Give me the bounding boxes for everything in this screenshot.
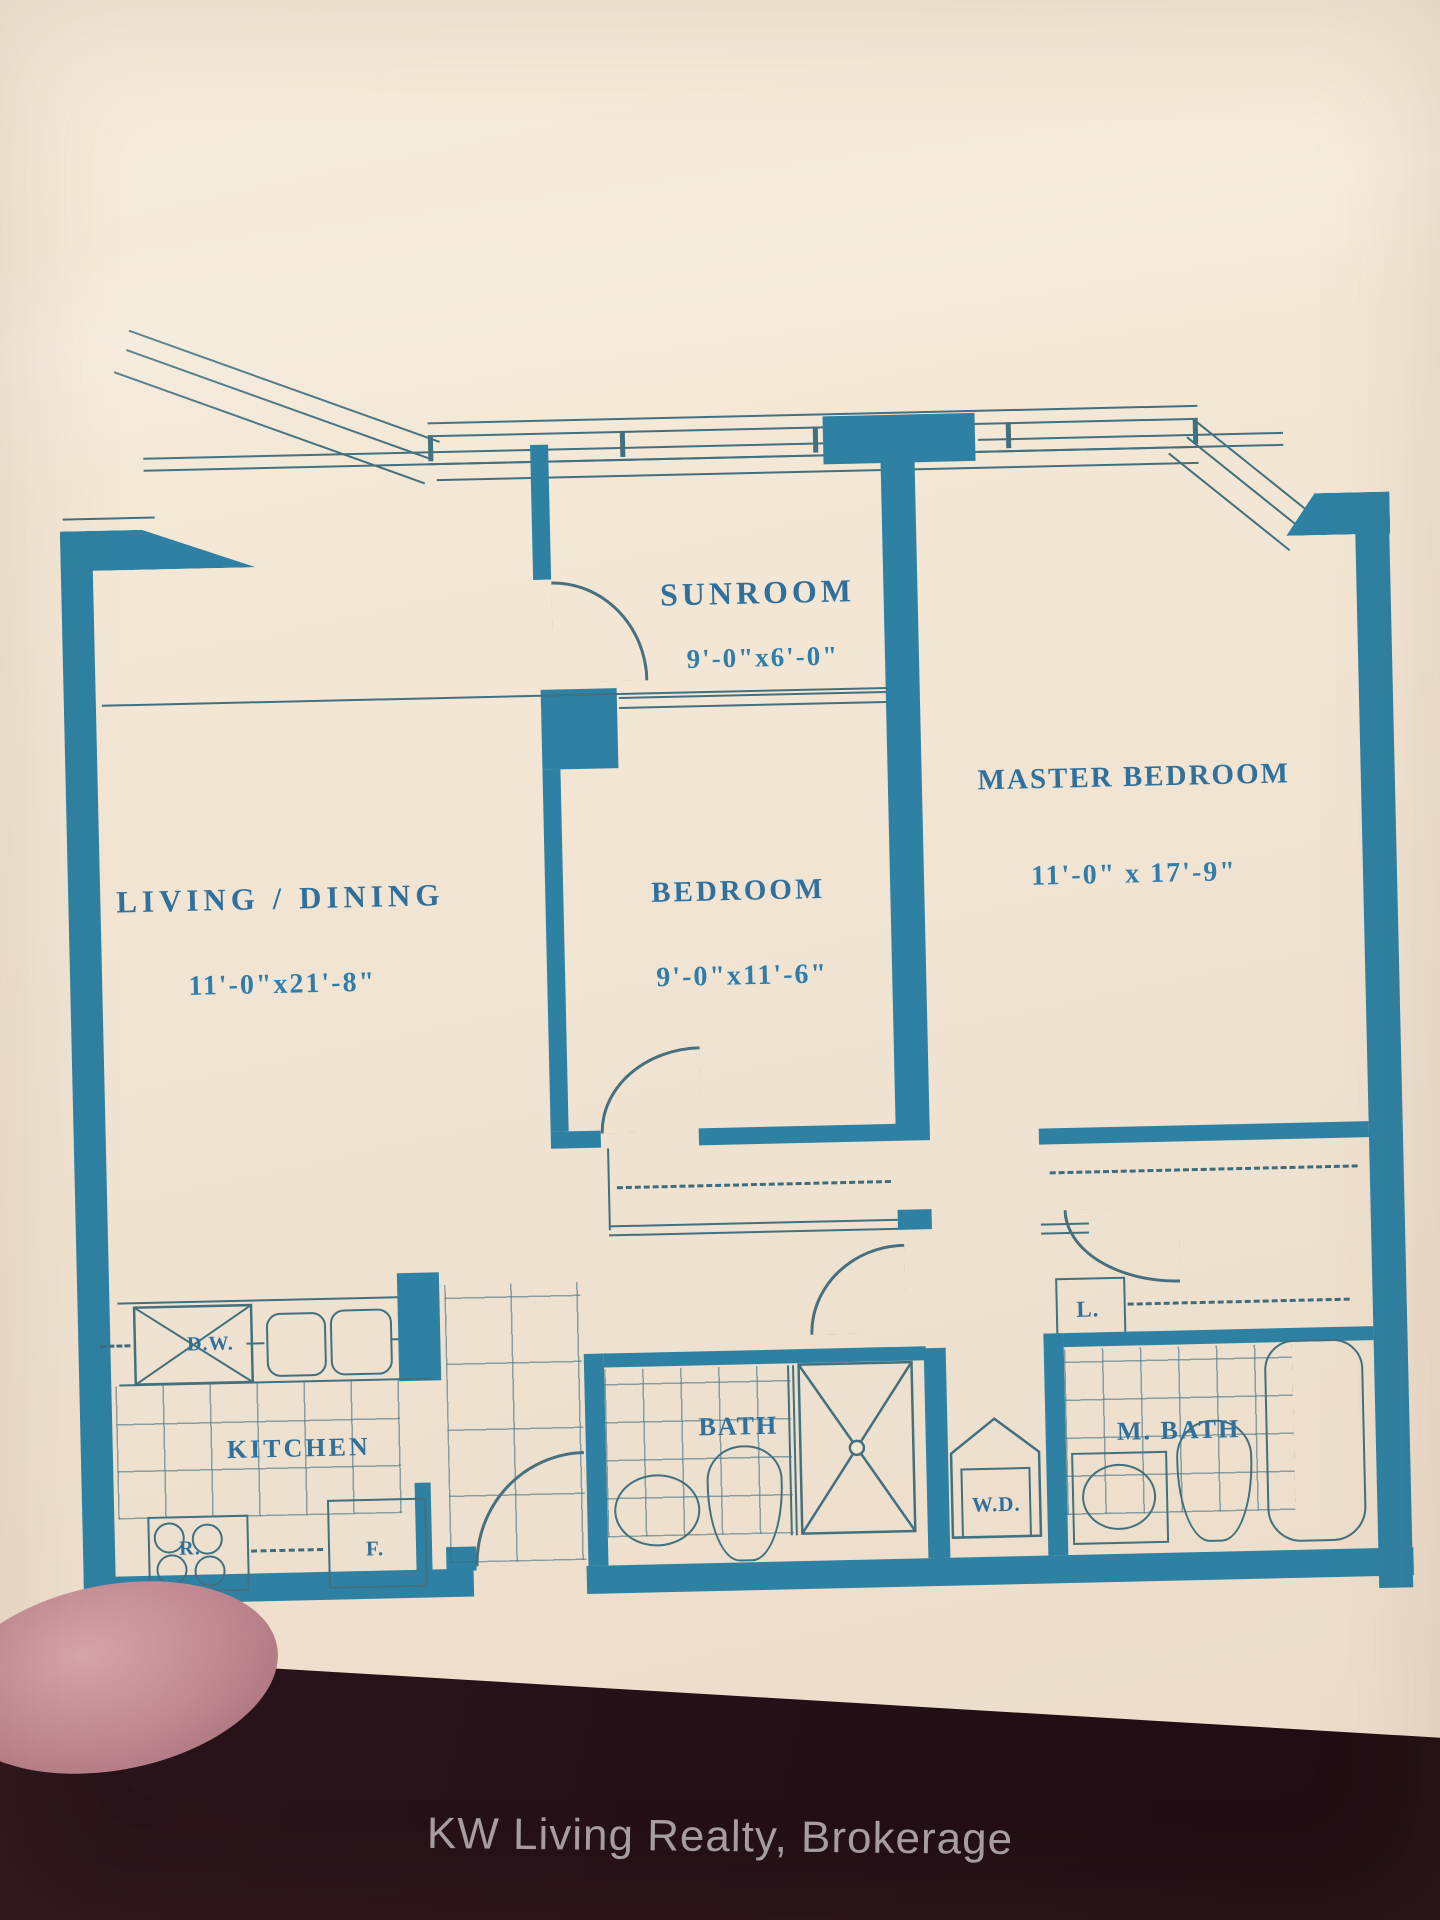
wall-master-closet-top — [1039, 1121, 1369, 1144]
wall-bedroom-left — [542, 769, 568, 1131]
fridge-label: F. — [366, 1536, 385, 1561]
closet-rod-bedroom — [617, 1180, 891, 1189]
floorplan-drawing: L. W.D. — [26, 325, 1436, 1676]
counter-back-line — [117, 1296, 417, 1305]
wall-pier-top-center — [822, 413, 975, 464]
kitchen-sink-left — [266, 1312, 327, 1377]
room-label-living-dining: LIVING / DINING — [116, 877, 445, 920]
balcony-floor-line — [437, 462, 1199, 481]
closet-doors-bedroom — [609, 1219, 898, 1237]
room-label-master-bath: M. BATH — [1117, 1414, 1241, 1447]
bath-sink — [613, 1473, 701, 1547]
wall-left — [60, 533, 116, 1595]
room-dims-master-bedroom: 11'-0" x 17'-9" — [1031, 856, 1237, 893]
wall-kitchen-block — [397, 1272, 441, 1381]
door-arc-bedroom — [599, 1046, 702, 1133]
room-label-master-bedroom: MASTER BEDROOM — [977, 757, 1290, 797]
floorplan-photo: L. W.D. — [0, 0, 1440, 1920]
closet-rod-master — [1050, 1164, 1358, 1174]
room-label-sunroom: SUNROOM — [660, 572, 856, 613]
sink-tick-left — [246, 1342, 264, 1344]
room-label-bath: BATH — [698, 1411, 778, 1443]
kitchen-sink-right — [330, 1308, 393, 1375]
room-dims-bedroom: 9'-0"x11'-6" — [656, 958, 828, 994]
door-arc-master-bath — [1064, 1207, 1181, 1285]
washer-dryer-label: W.D. — [972, 1492, 1021, 1518]
linen-closet-label: L. — [1076, 1296, 1100, 1323]
range-label: R. — [179, 1537, 201, 1560]
washer-dryer-closet — [948, 1416, 1043, 1540]
railing-mid-line — [126, 349, 430, 459]
wall-block-sunroom-corner — [541, 688, 619, 770]
door-arc-hall — [808, 1244, 906, 1335]
room-dims-living-dining: 11'-0"x21'-8" — [188, 967, 376, 1003]
shower-stall — [797, 1361, 917, 1536]
wall-center-stub — [898, 1209, 932, 1230]
room-label-kitchen: KITCHEN — [227, 1432, 371, 1465]
bath-toilet — [706, 1445, 785, 1563]
wall-bedroom-bottom-right — [699, 1123, 930, 1145]
railing-mid-line — [1186, 436, 1302, 529]
master-bath-tub — [1264, 1338, 1368, 1542]
wall-bath-right — [924, 1348, 951, 1558]
room-dims-sunroom: 9'-0"x6'-0" — [686, 641, 839, 675]
counter-dash-bottom — [251, 1548, 323, 1553]
door-arc-sunroom — [551, 579, 648, 682]
wall-bottom-main — [587, 1547, 1414, 1594]
closet-side-line — [607, 1148, 611, 1230]
wall-sunroom-left — [530, 445, 551, 580]
room-label-bedroom: BEDROOM — [651, 873, 826, 910]
counter-dash-left — [100, 1344, 130, 1348]
wall-center-vertical — [880, 458, 929, 1140]
wall-bedroom-bottom-left — [551, 1131, 601, 1149]
dishwasher-label: D.W. — [187, 1332, 234, 1356]
window-sill-line — [63, 517, 155, 521]
closet-rod-linen — [1128, 1298, 1350, 1306]
